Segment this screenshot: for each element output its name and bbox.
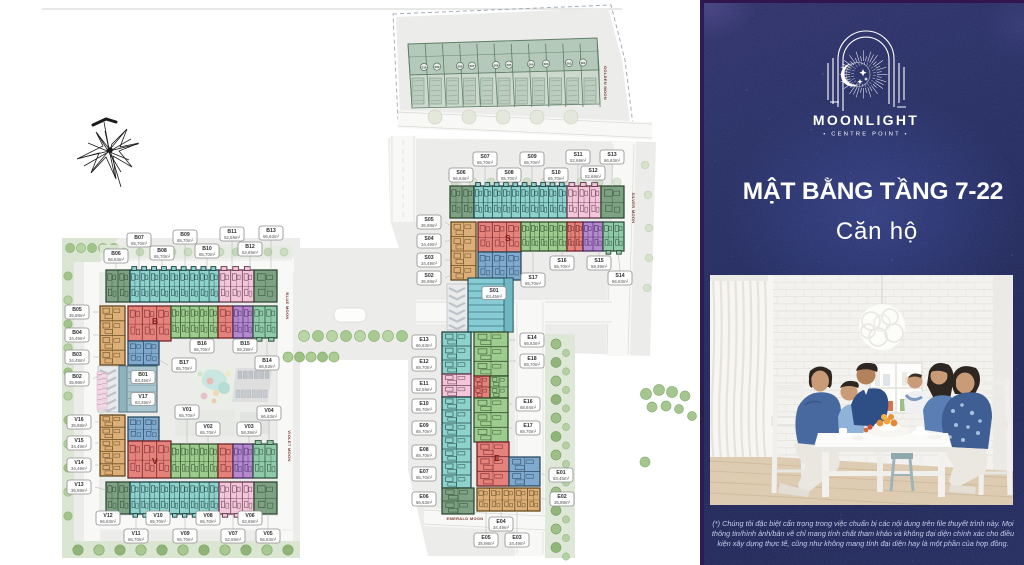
svg-text:65,70m²: 65,70m² <box>131 241 148 246</box>
svg-text:65,70m²: 65,70m² <box>194 347 211 352</box>
svg-text:59,39m²: 59,39m² <box>241 430 258 435</box>
svg-text:• CENTRE POINT •: • CENTRE POINT • <box>823 132 909 138</box>
svg-text:GOLDEN MOON: GOLDEN MOON <box>603 66 608 100</box>
svg-text:83,45m²: 83,45m² <box>486 294 503 299</box>
svg-text:52,69m²: 52,69m² <box>416 387 433 392</box>
svg-text:35,98m²: 35,98m² <box>478 541 495 546</box>
svg-text:65,70m²: 65,70m² <box>416 365 433 370</box>
svg-text:52,69m²: 52,69m² <box>570 158 587 163</box>
svg-text:S07: S07 <box>470 64 475 68</box>
svg-text:34,49m²: 34,49m² <box>71 466 88 471</box>
svg-text:66,63m²: 66,63m² <box>108 257 125 262</box>
svg-text:MOONLIGHT: MOONLIGHT <box>813 112 919 128</box>
svg-text:66,63m²: 66,63m² <box>416 343 433 348</box>
svg-text:S02: S02 <box>567 61 572 65</box>
svg-text:65,70m²: 65,70m² <box>477 160 494 165</box>
svg-text:52,69m²: 52,69m² <box>225 537 242 542</box>
svg-text:S09: S09 <box>435 65 440 69</box>
svg-text:S03: S03 <box>544 62 549 66</box>
svg-text:V: V <box>152 456 158 466</box>
svg-text:65,70m²: 65,70m² <box>176 366 193 371</box>
svg-text:BLUE MOON: BLUE MOON <box>285 292 290 319</box>
svg-text:S04: S04 <box>529 63 534 67</box>
svg-text:83,45m²: 83,45m² <box>135 378 152 383</box>
svg-text:65,70m²: 65,70m² <box>416 475 433 480</box>
svg-text:59,39m²: 59,39m² <box>591 264 608 269</box>
svg-text:65,70m²: 65,70m² <box>520 429 537 434</box>
svg-text:E: E <box>494 453 500 463</box>
svg-text:S01: S01 <box>581 61 586 65</box>
svg-text:34,49m²: 34,49m² <box>71 444 88 449</box>
svg-text:65,70m²: 65,70m² <box>200 519 217 524</box>
svg-text:66,63m²: 66,63m² <box>260 537 277 542</box>
svg-text:65,70m²: 65,70m² <box>554 264 571 269</box>
svg-text:65,70m²: 65,70m² <box>524 160 541 165</box>
svg-text:66,63m²: 66,63m² <box>524 341 541 346</box>
svg-text:66,63m²: 66,63m² <box>416 500 433 505</box>
svg-text:65,70m²: 65,70m² <box>501 176 518 181</box>
svg-text:65,70m²: 65,70m² <box>548 176 565 181</box>
svg-text:34,49m²: 34,49m² <box>493 525 510 530</box>
svg-text:65,70m²: 65,70m² <box>416 429 433 434</box>
svg-text:65,70m²: 65,70m² <box>199 252 216 257</box>
svg-text:68,94m²: 68,94m² <box>520 405 537 410</box>
svg-text:65,70m²: 65,70m² <box>524 362 541 367</box>
svg-text:B: B <box>152 316 158 326</box>
svg-text:52,69m²: 52,69m² <box>242 250 259 255</box>
svg-text:66,63m²: 66,63m² <box>604 158 621 163</box>
svg-text:83,45m²: 83,45m² <box>553 476 570 481</box>
svg-text:65,70m²: 65,70m² <box>128 537 145 542</box>
svg-text:SILVER MOON: SILVER MOON <box>631 192 636 223</box>
svg-text:35,98m²: 35,98m² <box>554 500 571 505</box>
svg-text:34,49m²: 34,49m² <box>421 242 438 247</box>
svg-text:65,70m²: 65,70m² <box>200 430 217 435</box>
svg-text:66,63m²: 66,63m² <box>263 234 280 239</box>
svg-text:VIOLET MOON: VIOLET MOON <box>287 430 292 461</box>
svg-text:35,98m²: 35,98m² <box>421 279 438 284</box>
svg-text:52,69m²: 52,69m² <box>242 519 259 524</box>
svg-text:65,70m²: 65,70m² <box>177 537 194 542</box>
svg-text:34,49m²: 34,49m² <box>509 541 526 546</box>
svg-text:34,49m²: 34,49m² <box>421 261 438 266</box>
svg-text:83,45m²: 83,45m² <box>135 400 152 405</box>
svg-text:S05: S05 <box>507 63 512 67</box>
svg-text:65,70m²: 65,70m² <box>179 413 196 418</box>
svg-text:35,98m²: 35,98m² <box>71 423 88 428</box>
svg-text:S: S <box>505 233 511 243</box>
svg-text:66,63m²: 66,63m² <box>259 364 276 369</box>
svg-text:65,70m²: 65,70m² <box>177 238 194 243</box>
svg-text:52,69m²: 52,69m² <box>585 174 602 179</box>
svg-text:66,63m²: 66,63m² <box>100 519 117 524</box>
svg-text:65,70m²: 65,70m² <box>150 519 167 524</box>
svg-text:35,98m²: 35,98m² <box>421 223 438 228</box>
svg-text:66,63m²: 66,63m² <box>453 176 470 181</box>
svg-text:66,63m²: 66,63m² <box>261 414 278 419</box>
svg-text:59,39m²: 59,39m² <box>237 347 254 352</box>
svg-text:34,49m²: 34,49m² <box>69 336 86 341</box>
svg-text:S06: S06 <box>494 64 499 68</box>
svg-text:66,63m²: 66,63m² <box>612 279 629 284</box>
svg-text:35,98m²: 35,98m² <box>69 380 86 385</box>
svg-text:S08: S08 <box>458 65 463 69</box>
svg-text:34,49m²: 34,49m² <box>69 358 86 363</box>
svg-text:35,98m²: 35,98m² <box>71 488 88 493</box>
svg-text:65,70m²: 65,70m² <box>416 453 433 458</box>
svg-text:65,70m²: 65,70m² <box>525 281 542 286</box>
svg-text:65,70m²: 65,70m² <box>416 407 433 412</box>
svg-text:52,69m²: 52,69m² <box>224 235 241 240</box>
svg-text:65,70m²: 65,70m² <box>154 254 171 259</box>
svg-text:35,98m²: 35,98m² <box>69 313 86 318</box>
svg-text:EMERALD MOON: EMERALD MOON <box>447 516 484 521</box>
svg-text:S10: S10 <box>422 66 427 70</box>
